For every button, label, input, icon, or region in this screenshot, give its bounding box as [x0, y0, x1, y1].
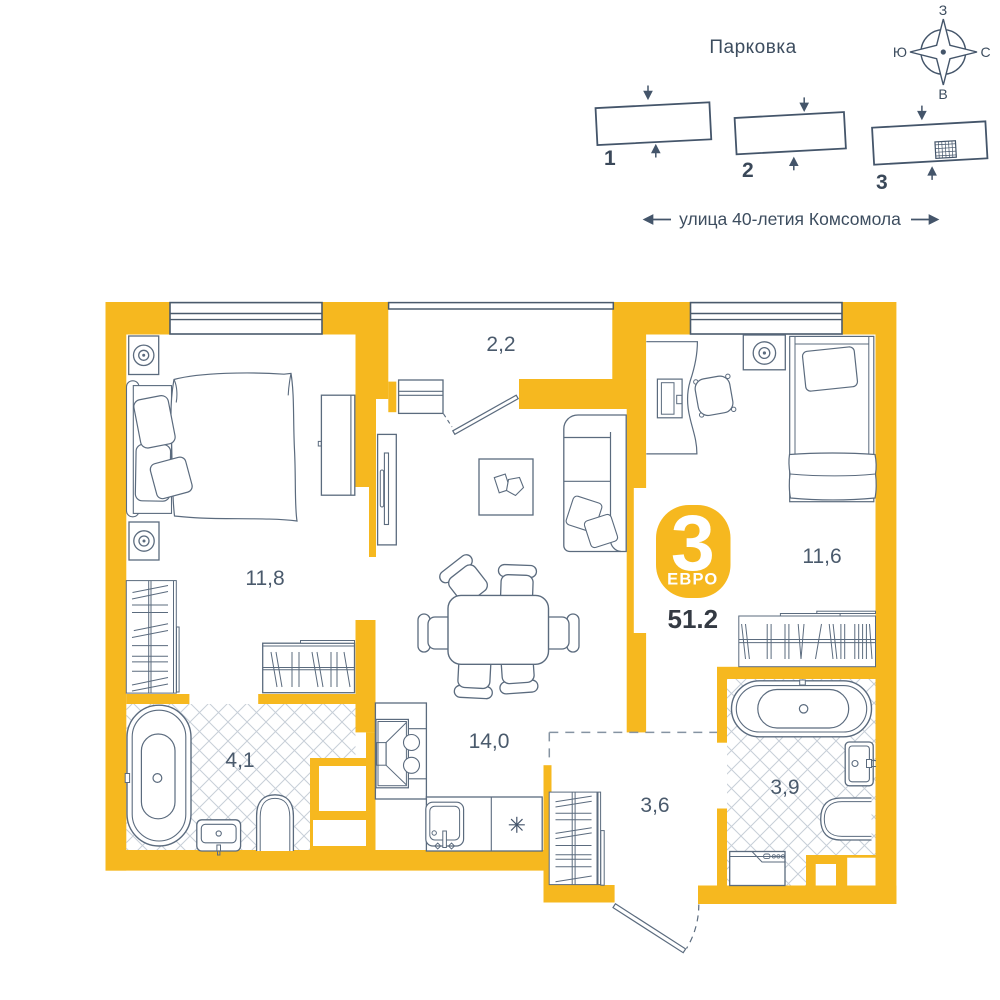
svg-text:3: 3 [876, 171, 888, 194]
svg-text:В: В [938, 86, 947, 102]
svg-text:улица 40-летия Комсомола: улица 40-летия Комсомола [679, 209, 901, 229]
svg-text:1: 1 [604, 147, 616, 170]
svg-text:С: С [980, 44, 990, 60]
svg-text:11,8: 11,8 [245, 567, 284, 590]
svg-text:2,2: 2,2 [486, 333, 515, 356]
svg-text:Ю: Ю [893, 44, 907, 60]
svg-text:4,1: 4,1 [225, 749, 254, 772]
svg-text:З: З [939, 2, 947, 18]
svg-text:3,9: 3,9 [770, 776, 799, 799]
svg-text:3,6: 3,6 [640, 794, 669, 817]
svg-text:14,0: 14,0 [469, 730, 510, 753]
svg-text:2: 2 [742, 159, 754, 182]
svg-text:ЕВРО: ЕВРО [667, 571, 718, 589]
svg-text:11,6: 11,6 [802, 545, 841, 568]
svg-text:51.2: 51.2 [667, 604, 718, 634]
svg-text:Парковка: Парковка [709, 37, 796, 58]
